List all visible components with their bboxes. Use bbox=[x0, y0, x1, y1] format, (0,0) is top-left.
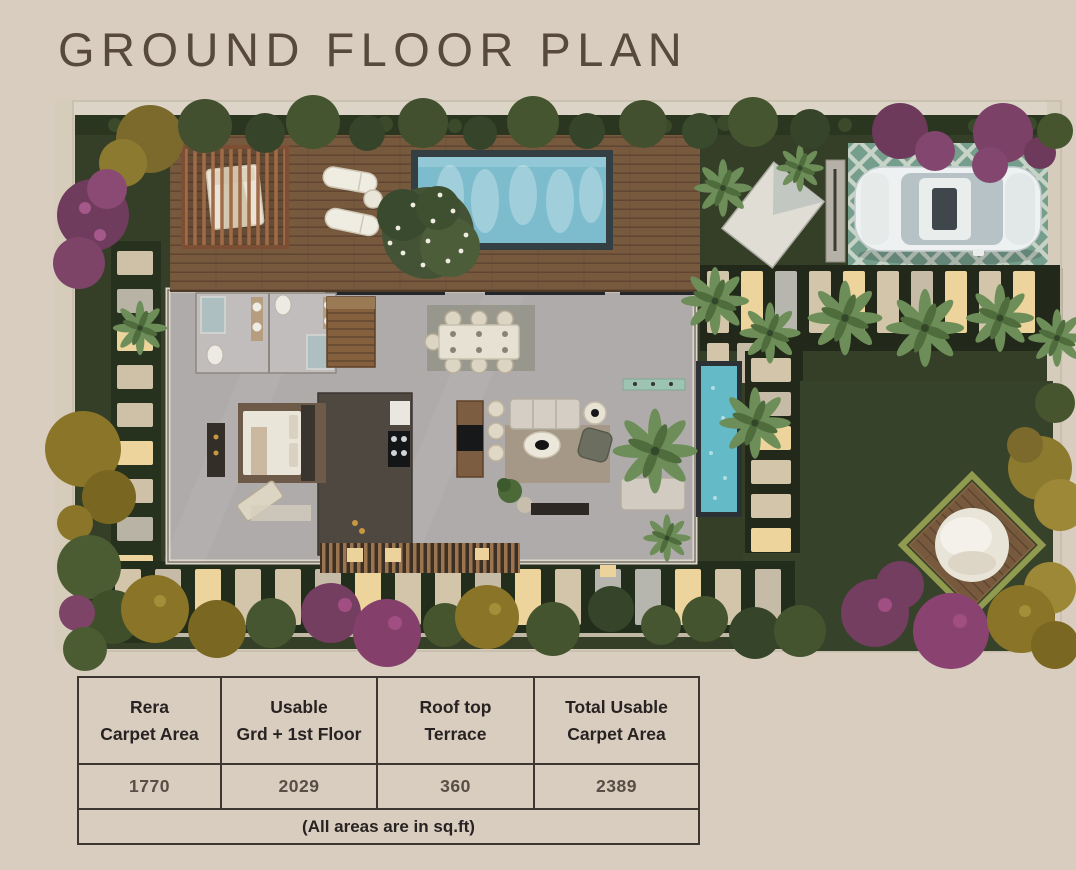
col-header-total-usable: Total Usable Carpet Area bbox=[534, 677, 699, 764]
pergola-daybed bbox=[183, 147, 287, 247]
staircase bbox=[327, 297, 375, 367]
value-total-usable: 2389 bbox=[534, 764, 699, 809]
car bbox=[855, 162, 1042, 265]
area-table: Rera Carpet Area Usable Grd + 1st Floor … bbox=[77, 676, 700, 845]
kitchen bbox=[318, 393, 412, 555]
table-footnote: (All areas are in sq.ft) bbox=[78, 809, 699, 844]
floor-plan-illustration bbox=[55, 93, 1063, 663]
value-rera-carpet-area: 1770 bbox=[78, 764, 221, 809]
col-header-roof-top-terrace: Roof top Terrace bbox=[377, 677, 534, 764]
bathrooms bbox=[196, 293, 336, 373]
value-roof-top-terrace: 360 bbox=[377, 764, 534, 809]
value-usable-grd-1st: 2029 bbox=[221, 764, 377, 809]
page-title: GROUND FLOOR PLAN bbox=[58, 22, 688, 77]
dining-set bbox=[425, 305, 535, 373]
col-header-usable-grd-1st: Usable Grd + 1st Floor bbox=[221, 677, 377, 764]
table-footnote-row: (All areas are in sq.ft) bbox=[78, 809, 699, 844]
col-header-rera-carpet-area: Rera Carpet Area bbox=[78, 677, 221, 764]
table-header-row: Rera Carpet Area Usable Grd + 1st Floor … bbox=[78, 677, 699, 764]
table-value-row: 1770 2029 360 2389 bbox=[78, 764, 699, 809]
